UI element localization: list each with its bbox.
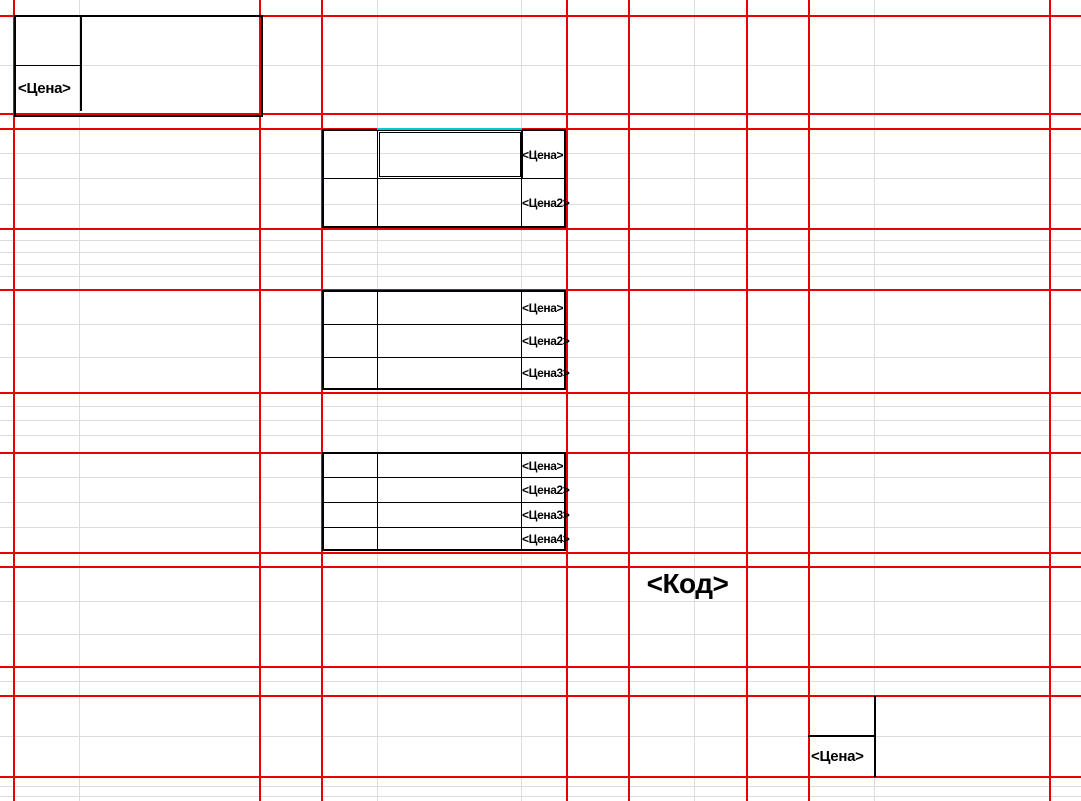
page-boundary-vertical <box>628 0 630 801</box>
page-boundary-vertical <box>1049 0 1051 801</box>
page-boundary-horizontal <box>0 695 1081 697</box>
cell-gridline-horizontal <box>0 796 1081 797</box>
price-placeholder-cell[interactable]: <Цена3> <box>522 358 566 388</box>
price-placeholder-cell[interactable]: <Цена> <box>522 131 566 178</box>
page-boundary-horizontal <box>0 776 1081 778</box>
cell-gridline-horizontal <box>0 681 1081 682</box>
page-boundary-horizontal <box>0 228 1081 230</box>
cell-gridline-horizontal <box>0 264 1081 265</box>
price-placeholder-cell[interactable]: <Цена2> <box>522 478 566 502</box>
page-boundary-vertical <box>746 0 748 801</box>
price-placeholder-cell[interactable]: <Цена4> <box>522 528 566 549</box>
cell-gridline-horizontal <box>0 634 1081 635</box>
price-placeholder-cell[interactable]: <Цена> <box>522 454 566 477</box>
selected-cell-top-accent <box>377 128 522 131</box>
price-placeholder-cell[interactable]: <Цена> <box>18 66 80 111</box>
page-boundary-horizontal <box>0 392 1081 394</box>
price-placeholder-cell[interactable]: <Цена3> <box>522 503 566 527</box>
price-placeholder-cell[interactable]: <Цена> <box>811 737 874 776</box>
selected-cell[interactable] <box>379 132 521 177</box>
page-boundary-horizontal <box>0 566 1081 568</box>
price-template-2row[interactable]: <Цена> <Цена2> <box>322 129 566 228</box>
code-placeholder-cell[interactable]: <Код> <box>629 565 746 603</box>
cell-gridline-horizontal <box>0 406 1081 407</box>
template-column-divider <box>377 292 378 388</box>
spreadsheet-canvas: <Цена> <Цена> <Цена2> <Цена> <Цена2> <Це… <box>0 0 1081 801</box>
cell-gridline-horizontal <box>0 736 1081 737</box>
price-template-3row[interactable]: <Цена> <Цена2> <Цена3> <box>322 290 566 390</box>
cell-gridline-horizontal <box>0 786 1081 787</box>
price-placeholder-cell[interactable]: <Цена2> <box>522 325 566 357</box>
cell-gridline-horizontal <box>0 420 1081 421</box>
price-template-top-left[interactable]: <Цена> <box>14 15 263 117</box>
cell-gridline-horizontal <box>0 435 1081 436</box>
page-boundary-vertical <box>13 0 15 801</box>
cell-gridline-horizontal <box>0 276 1081 277</box>
cell-gridline-horizontal <box>0 252 1081 253</box>
page-boundary-vertical <box>321 0 323 801</box>
page-boundary-horizontal <box>0 552 1081 554</box>
price-placeholder-cell[interactable]: <Цена> <box>522 292 566 324</box>
page-boundary-vertical <box>808 0 810 801</box>
cell-gridline-horizontal <box>0 601 1081 602</box>
page-boundary-horizontal <box>0 666 1081 668</box>
template-column-divider <box>80 17 82 111</box>
page-boundary-vertical <box>566 0 568 801</box>
price-placeholder-cell[interactable]: <Цена2> <box>522 179 566 226</box>
price-template-4row[interactable]: <Цена> <Цена2> <Цена3> <Цена4> <box>322 452 566 551</box>
cell-gridline-horizontal <box>0 240 1081 241</box>
page-boundary-vertical <box>259 0 261 801</box>
